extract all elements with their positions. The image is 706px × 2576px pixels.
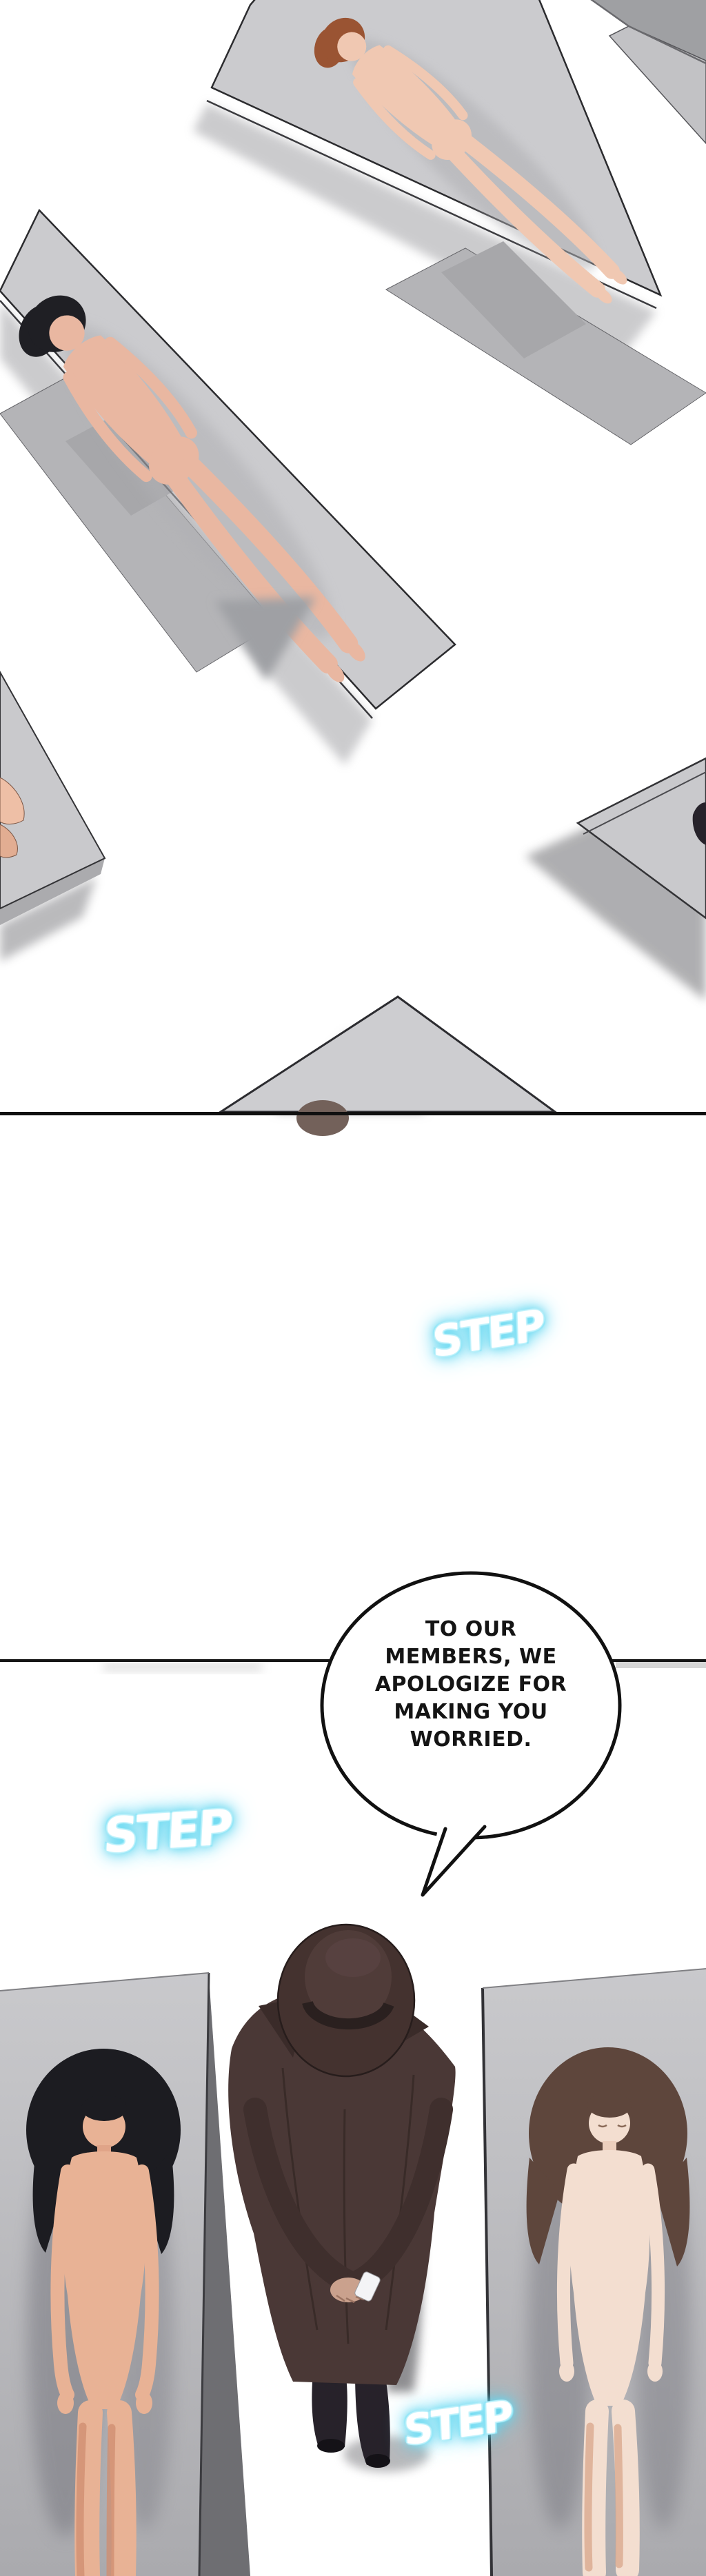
panel-three-figures <box>0 1925 706 2576</box>
speech-line: WORRIED. <box>357 1726 585 1754</box>
partial-table-left-edge <box>0 672 105 962</box>
sfx-step-2: STEP <box>102 1798 232 1864</box>
panel-tables-overhead <box>0 0 706 1136</box>
speech-line: MAKING YOU <box>357 1698 585 1726</box>
exam-table-a <box>193 0 706 445</box>
speech-line: MEMBERS, WE <box>357 1643 585 1671</box>
comic-artwork <box>0 0 706 2576</box>
panel-border-line-1 <box>0 1112 706 1115</box>
peeking-head <box>296 1100 349 1136</box>
partial-table-right-edge <box>525 758 706 1001</box>
speech-line: TO OUR <box>357 1616 585 1643</box>
comic-page: STEP STEP STEP TO OUR MEMBERS, WE APOLOG… <box>0 0 706 2576</box>
speech-line: APOLOGIZE FOR <box>357 1671 585 1698</box>
speech-bubble-text: TO OUR MEMBERS, WE APOLOGIZE FOR MAKING … <box>357 1616 585 1754</box>
standing-figure-coat-fedora <box>228 1925 455 2472</box>
partial-table-top-right <box>586 0 706 143</box>
